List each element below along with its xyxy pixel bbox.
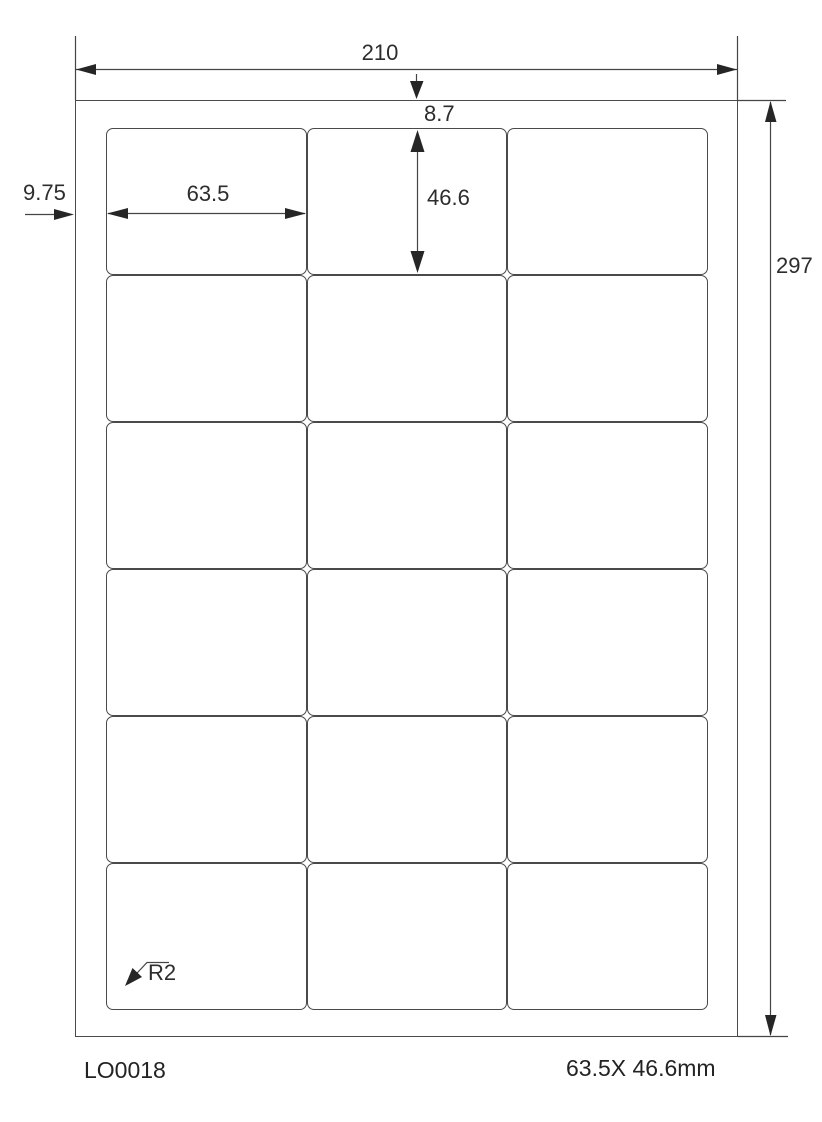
- dim-top-margin: 8.7: [424, 102, 455, 126]
- label-height-dimension: [411, 130, 425, 273]
- dim-corner-radius: R2: [148, 961, 176, 985]
- label-width-dimension: [107, 208, 306, 219]
- arrow-left-icon: [76, 64, 96, 75]
- arrow-right-icon: [54, 209, 74, 220]
- footer-product-code: LO0018: [84, 1058, 166, 1083]
- dim-page-height: 297: [776, 254, 813, 278]
- arrow-down-icon: [411, 251, 425, 273]
- arrow-up-icon: [765, 101, 777, 122]
- dim-label-width: 63.5: [166, 182, 250, 206]
- arrow-down-icon: [765, 1015, 777, 1036]
- dim-left-margin: 9.75: [23, 181, 66, 205]
- arrow-down-icon: [410, 81, 424, 99]
- top-margin-dimension: [410, 74, 424, 99]
- label-sheet-diagram: 210 8.7 63.5 46.6 9.75 297 R2 LO0018 63.…: [0, 0, 822, 1122]
- arrow-right-icon: [717, 64, 737, 75]
- footer-label-size: 63.5X 46.6mm: [566, 1056, 716, 1081]
- dim-label-height: 46.6: [427, 186, 470, 210]
- arrow-up-icon: [411, 130, 425, 152]
- dim-page-width: 210: [338, 41, 422, 65]
- page-height-dimension: [738, 101, 788, 1037]
- left-margin-dimension: [25, 209, 74, 220]
- arrow-right-icon: [285, 208, 306, 219]
- arrow-left-icon: [107, 208, 128, 219]
- dimension-graphics: [0, 0, 822, 1122]
